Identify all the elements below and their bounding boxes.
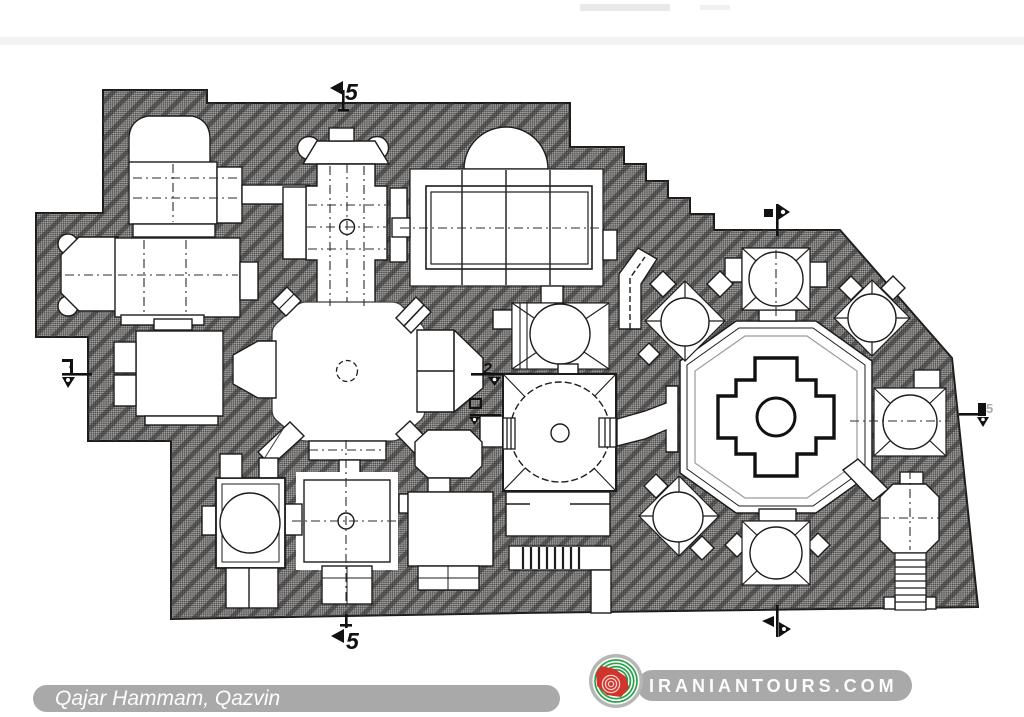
svg-text:5: 5 [345, 79, 359, 105]
svg-text:5: 5 [346, 628, 360, 654]
svg-text:5: 5 [986, 401, 993, 416]
svg-text:Qajar Hammam, Qazvin: Qajar Hammam, Qazvin [55, 687, 280, 710]
svg-text:IRANIANTOURS.COM: IRANIANTOURS.COM [649, 676, 898, 696]
